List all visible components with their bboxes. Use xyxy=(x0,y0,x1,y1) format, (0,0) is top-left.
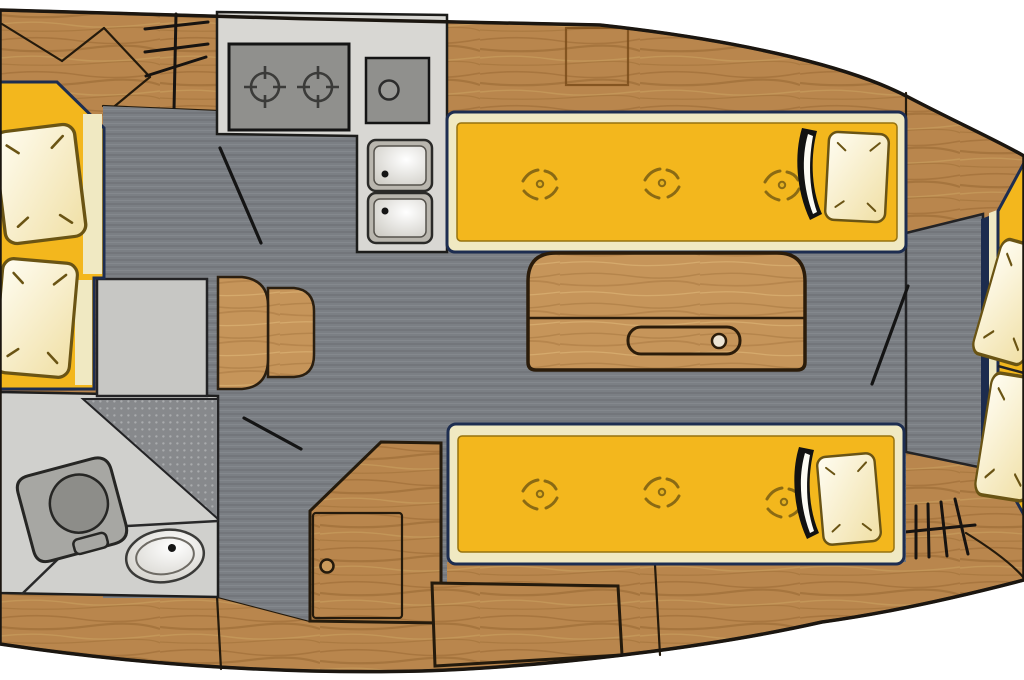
pillow xyxy=(816,453,881,546)
settee-top xyxy=(447,112,906,252)
berth-left-border xyxy=(83,114,102,274)
pillow xyxy=(825,131,890,222)
berth-left-border-lower xyxy=(75,280,92,385)
pillow xyxy=(0,258,78,379)
step-back xyxy=(268,288,314,377)
floor-plan-canvas xyxy=(0,0,1024,680)
round-basin-icon xyxy=(380,81,399,100)
floor-forecabin xyxy=(906,214,983,468)
settee-bottom xyxy=(448,424,904,564)
table-top xyxy=(528,253,805,370)
table-leaf-latch xyxy=(712,334,726,348)
salon-table xyxy=(528,253,805,370)
passage-alcove xyxy=(97,279,207,396)
pillow xyxy=(0,123,87,245)
settee-base-trim xyxy=(432,583,622,666)
berth-left xyxy=(0,82,104,389)
salon-steps xyxy=(218,277,314,389)
head-compartment xyxy=(0,392,218,597)
double-sink-icon xyxy=(368,140,432,243)
floor-plan-stage xyxy=(0,0,1024,680)
cabinet-door-handle xyxy=(321,560,334,573)
step-front xyxy=(218,277,268,389)
